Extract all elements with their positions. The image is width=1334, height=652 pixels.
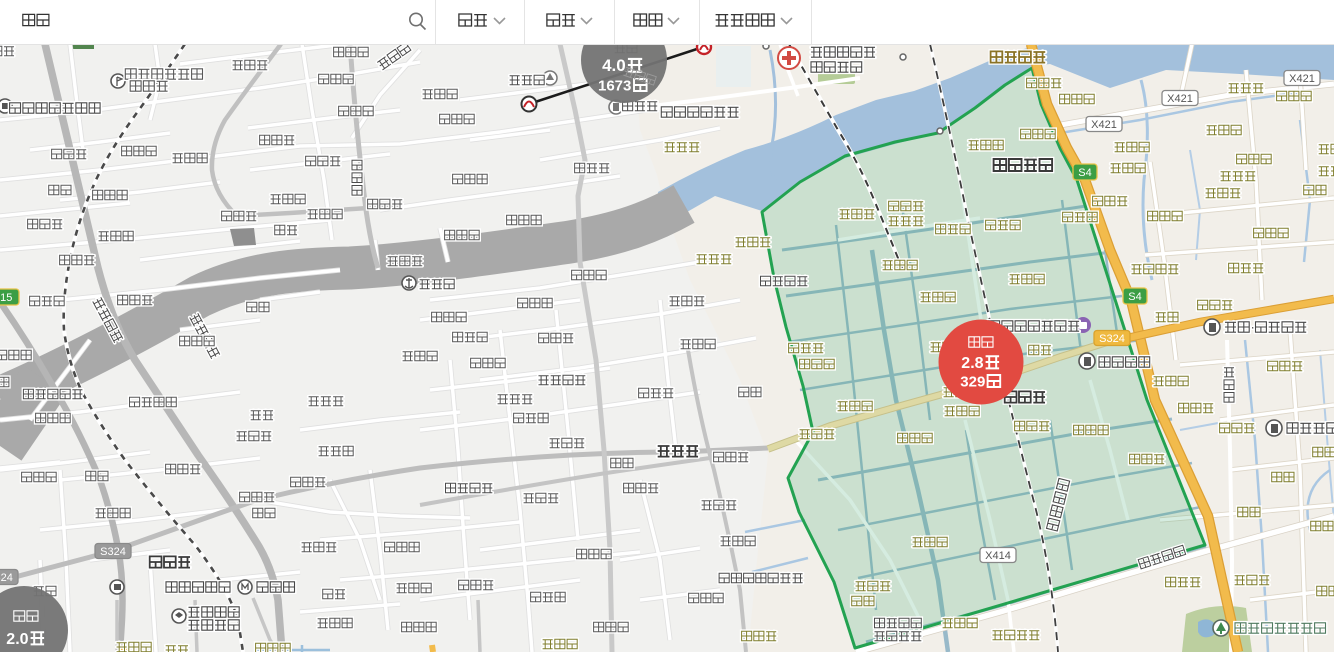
svg-text:X421: X421 [1091, 119, 1117, 131]
svg-text:·: · [1251, 320, 1255, 335]
svg-text:4.0: 4.0 [602, 56, 626, 75]
svg-text:1673: 1673 [598, 77, 631, 94]
svg-text:S324: S324 [100, 546, 126, 558]
svg-text:2.0: 2.0 [6, 631, 28, 648]
svg-text:2.8: 2.8 [961, 355, 983, 372]
svg-text:X414: X414 [985, 550, 1011, 562]
svg-text:S324: S324 [0, 572, 13, 584]
svg-text:X421: X421 [1289, 73, 1315, 85]
svg-text:S324: S324 [1099, 333, 1125, 345]
svg-text:329: 329 [960, 373, 985, 390]
svg-text:S4: S4 [1078, 167, 1091, 179]
svg-text:X421: X421 [1167, 93, 1193, 105]
svg-text:S4: S4 [1128, 291, 1141, 303]
svg-text:G15: G15 [0, 292, 12, 304]
